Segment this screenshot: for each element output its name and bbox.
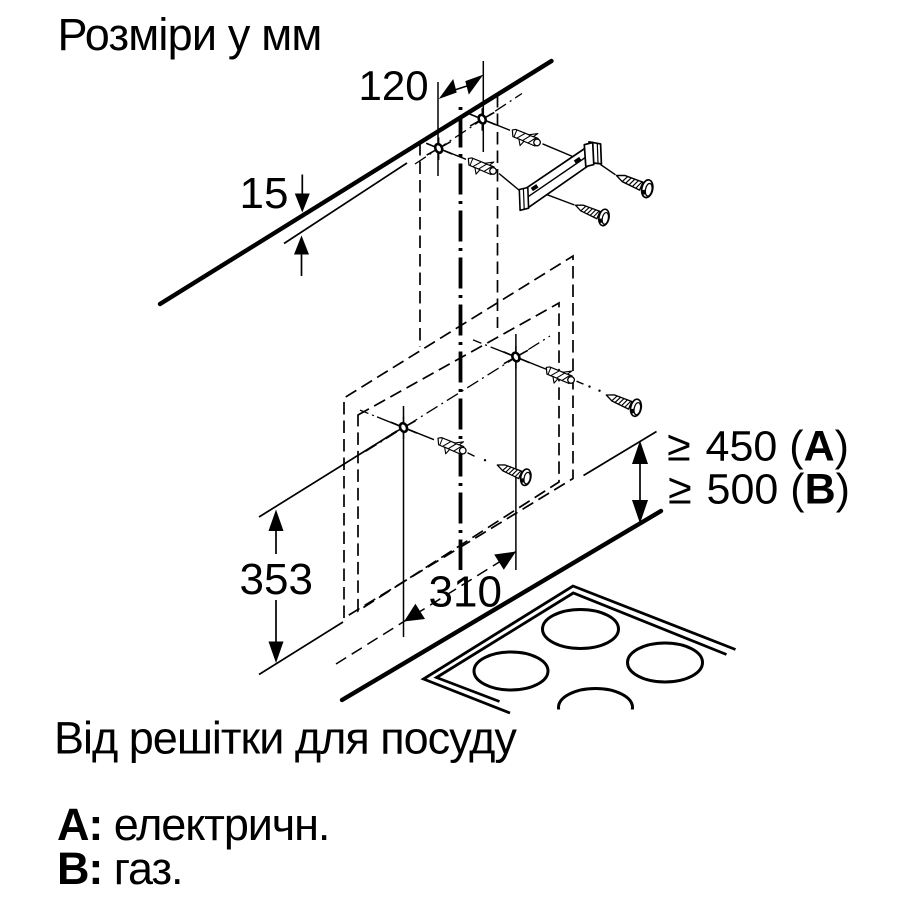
- svg-text:310: 310: [429, 568, 502, 617]
- svg-text:B: газ.: B: газ.: [57, 843, 182, 894]
- svg-text:Розміри у мм: Розміри у мм: [58, 9, 322, 60]
- svg-text:353: 353: [240, 555, 313, 604]
- svg-text:120: 120: [359, 62, 429, 109]
- svg-text:≥ 500 (B): ≥ 500 (B): [668, 466, 850, 514]
- svg-text:15: 15: [240, 169, 289, 218]
- svg-text:≥ 450 (A): ≥ 450 (A): [667, 423, 849, 471]
- svg-text:Від решітки для посуду: Від решітки для посуду: [54, 713, 517, 764]
